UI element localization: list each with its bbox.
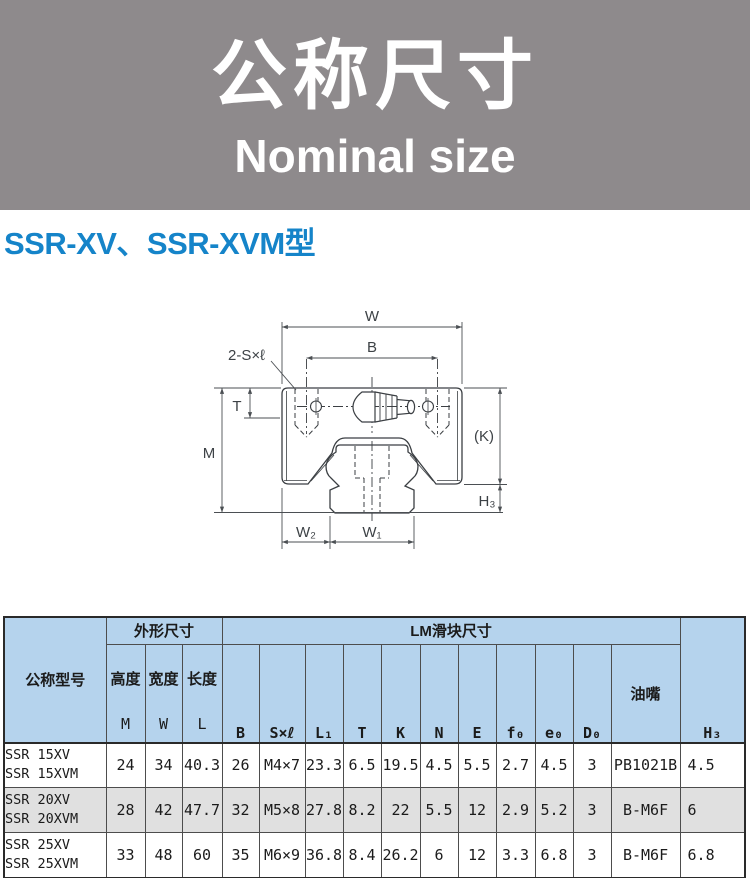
cell-nipple: PB1021B (611, 743, 680, 788)
cell-E: 12 (458, 788, 496, 833)
cell-nipple: B-M6F (611, 788, 680, 833)
col-header-L1: L₁ (305, 644, 343, 743)
cell-L1: 36.8 (305, 833, 343, 878)
model-line2: SSR 20XVM (5, 810, 106, 829)
dim-label-w: W (365, 308, 380, 325)
col-header-height-zh: 高度 (110, 668, 140, 689)
cell-N: 6 (420, 833, 458, 878)
dim-label-screw: 2-S×ℓ (228, 347, 265, 364)
cell-K: 26.2 (381, 833, 420, 878)
cell-L: 60 (182, 833, 222, 878)
cell-Sxl: M6×9 (259, 833, 305, 878)
model-line1: SSR 25XV (5, 836, 106, 855)
dimensions-table: 公称型号 外形尺寸 LM滑块尺寸 H₃ 高度 M 宽度 W (3, 616, 746, 878)
model-line2: SSR 15XVM (5, 765, 106, 784)
cell-L: 40.3 (182, 743, 222, 788)
cell-D0: 3 (573, 788, 611, 833)
col-header-D0: D₀ (573, 644, 611, 743)
cell-nipple: B-M6F (611, 833, 680, 878)
cell-T: 8.4 (343, 833, 381, 878)
group-header-outer-dims: 外形尺寸 (106, 617, 222, 644)
cell-M: 28 (106, 788, 145, 833)
cell-H3: 4.5 (680, 743, 745, 788)
model-cell: SSR 20XV SSR 20XVM (4, 788, 106, 833)
dim-label-t: T (232, 398, 241, 415)
table-row-ssr20: SSR 20XV SSR 20XVM 28 42 47.7 32 M5×8 27… (4, 788, 745, 833)
dim-label-w2: W₂ (296, 524, 316, 541)
cell-L1: 23.3 (305, 743, 343, 788)
col-header-E: E (458, 644, 496, 743)
cell-T: 8.2 (343, 788, 381, 833)
cell-f0: 3.3 (496, 833, 535, 878)
cross-section-diagram: W B 2-S×ℓ T M (K) H₃ W₂ W₁ (190, 298, 570, 571)
cell-W: 42 (145, 788, 182, 833)
col-header-h3: H₃ (680, 617, 745, 743)
cell-H3: 6.8 (680, 833, 745, 878)
cell-Sxl: M4×7 (259, 743, 305, 788)
model-line1: SSR 20XV (5, 791, 106, 810)
col-header-B: B (222, 644, 259, 743)
model-line1: SSR 15XV (5, 746, 106, 765)
col-header-length-zh: 长度 (187, 668, 217, 689)
dim-label-k: (K) (474, 428, 494, 445)
col-header-f0: f₀ (496, 644, 535, 743)
col-header-K: K (381, 644, 420, 743)
cell-e0: 5.2 (535, 788, 573, 833)
cell-B: 26 (222, 743, 259, 788)
model-cell: SSR 15XV SSR 15XVM (4, 743, 106, 788)
col-header-model: 公称型号 (4, 617, 106, 743)
cell-E: 12 (458, 833, 496, 878)
col-header-e0: e₀ (535, 644, 573, 743)
cell-E: 5.5 (458, 743, 496, 788)
model-line2: SSR 25XVM (5, 855, 106, 874)
catalog-page: 公称尺寸 Nominal size SSR-XV、SSR-XVM型 (0, 0, 750, 878)
col-header-T: T (343, 644, 381, 743)
cell-K: 22 (381, 788, 420, 833)
linear-guide-drawing: W B 2-S×ℓ T M (K) H₃ W₂ W₁ (190, 298, 570, 566)
col-header-width-zh: 宽度 (148, 668, 178, 689)
cell-e0: 4.5 (535, 743, 573, 788)
cell-D0: 3 (573, 833, 611, 878)
col-header-N: N (420, 644, 458, 743)
cell-B: 32 (222, 788, 259, 833)
cell-L: 47.7 (182, 788, 222, 833)
group-header-lm-block-dims: LM滑块尺寸 (222, 617, 680, 644)
col-header-length-sym: L (198, 715, 207, 733)
cell-M: 24 (106, 743, 145, 788)
center-lines (297, 359, 450, 521)
model-cell: SSR 25XV SSR 25XVM (4, 833, 106, 878)
cell-N: 4.5 (420, 743, 458, 788)
cell-H3: 6 (680, 788, 745, 833)
dim-label-m: M (203, 445, 216, 462)
dim-label-b: B (367, 339, 377, 356)
cell-D0: 3 (573, 743, 611, 788)
col-header-width-sym: W (159, 715, 168, 733)
cell-f0: 2.9 (496, 788, 535, 833)
cell-N: 5.5 (420, 788, 458, 833)
table-row-ssr15: SSR 15XV SSR 15XVM 24 34 40.3 26 M4×7 23… (4, 743, 745, 788)
col-header-height: 高度 M (106, 644, 145, 743)
cell-W: 34 (145, 743, 182, 788)
col-header-Sxl: S×ℓ (259, 644, 305, 743)
col-header-length: 长度 L (182, 644, 222, 743)
banner-title-zh: 公称尺寸 (211, 39, 539, 115)
table-row-ssr25: SSR 25XV SSR 25XVM 33 48 60 35 M6×9 36.8… (4, 833, 745, 878)
dim-label-w1: W₁ (362, 524, 381, 541)
cell-B: 35 (222, 833, 259, 878)
cell-W: 48 (145, 833, 182, 878)
col-header-height-sym: M (121, 715, 130, 733)
cell-f0: 2.7 (496, 743, 535, 788)
header-banner: 公称尺寸 Nominal size (0, 0, 750, 210)
section-title: SSR-XV、SSR-XVM型 (4, 218, 315, 263)
cell-T: 6.5 (343, 743, 381, 788)
cell-M: 33 (106, 833, 145, 878)
banner-title-en: Nominal size (234, 133, 515, 179)
cell-L1: 27.8 (305, 788, 343, 833)
grease-nipple (353, 392, 415, 422)
cell-K: 19.5 (381, 743, 420, 788)
cell-Sxl: M5×8 (259, 788, 305, 833)
col-header-grease-nipple: 油嘴 (611, 644, 680, 743)
col-header-width: 宽度 W (145, 644, 182, 743)
dim-label-h3: H₃ (479, 493, 496, 510)
cell-e0: 6.8 (535, 833, 573, 878)
